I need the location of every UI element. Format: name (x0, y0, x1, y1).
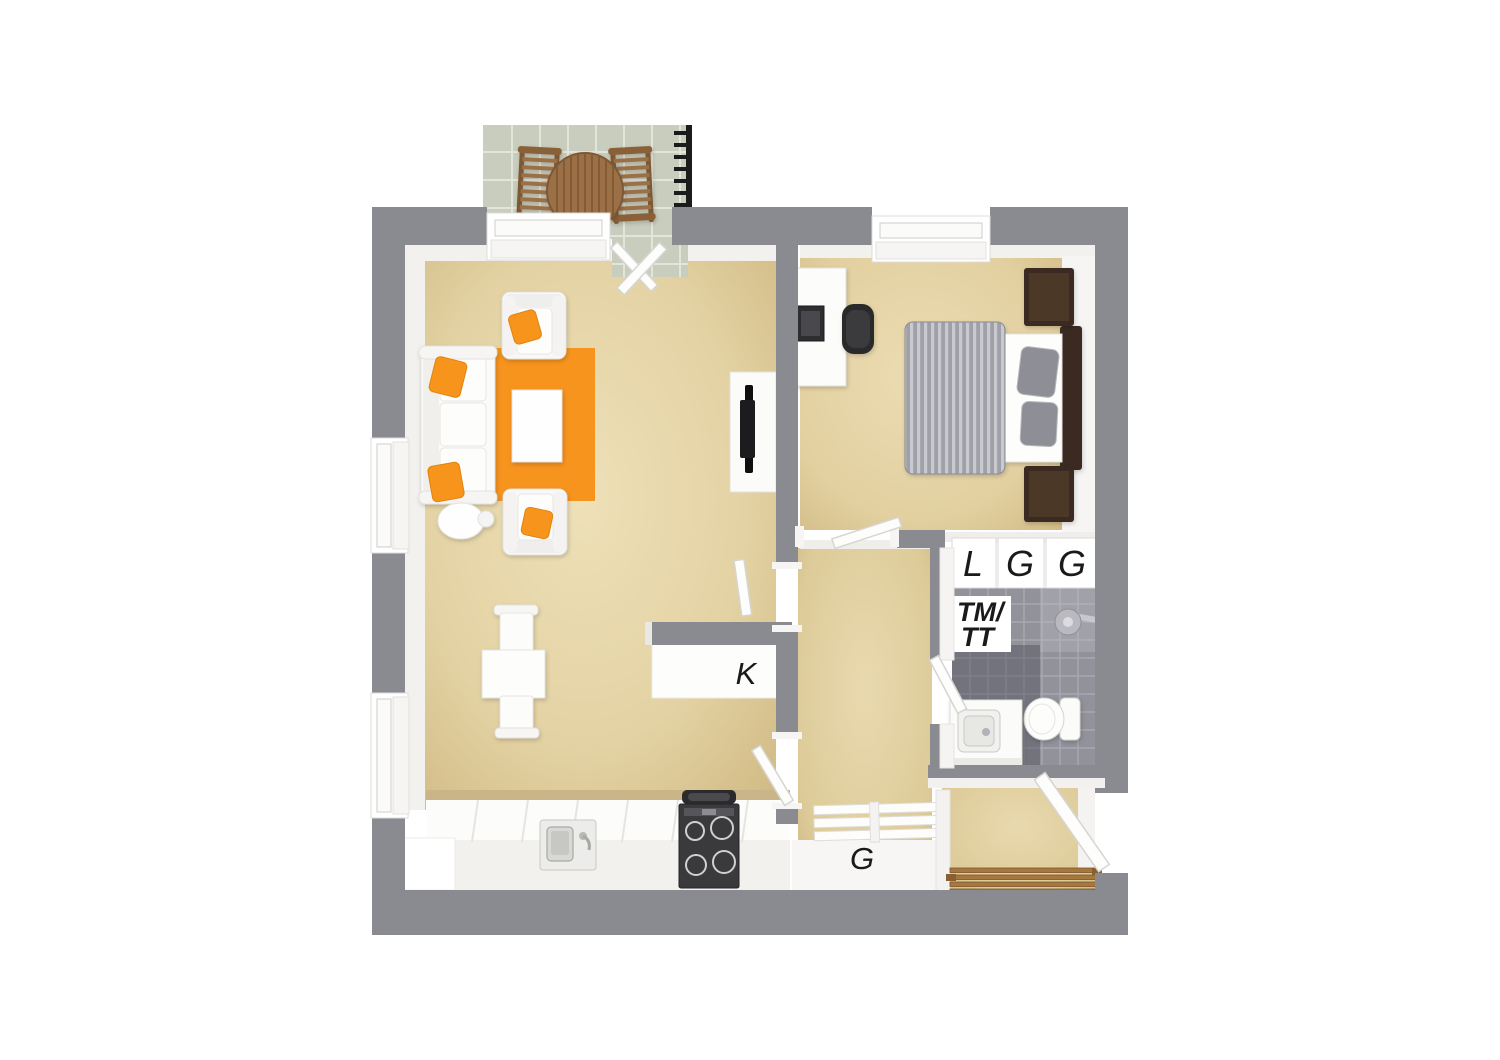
nightstand-bottom (1024, 466, 1074, 522)
bed (905, 322, 1082, 474)
headboard (1060, 326, 1082, 470)
stove (679, 790, 739, 888)
kitchen-sink (540, 820, 596, 870)
wall-right-upper (1095, 207, 1128, 793)
toilet (1024, 698, 1080, 740)
wall-hall-mid (776, 630, 798, 737)
wall-bath-left-upper (930, 548, 940, 660)
bedroom-window (872, 216, 990, 262)
armchair-bottom-pillow (520, 506, 553, 539)
wall-left-mid (372, 553, 405, 693)
duvet (905, 322, 1005, 474)
pillow-1 (1016, 346, 1060, 398)
living-room-window (487, 213, 610, 260)
wall-top-mid (672, 207, 872, 245)
half-wall-face (652, 644, 790, 698)
wall-left-upper (372, 207, 405, 438)
closet-label-L: L (963, 543, 983, 584)
coffee-table (512, 390, 562, 462)
tv-stand (730, 372, 776, 492)
wall-left-lower (372, 818, 405, 893)
wall-bedroom-bottom (897, 530, 945, 548)
kitchen-half-wall (645, 622, 792, 698)
left-window-2 (371, 693, 409, 818)
closet-rails (814, 800, 947, 843)
floor-plan-svg: K G L G G TM/ TT (0, 0, 1500, 1060)
kitchen-counter (397, 790, 790, 890)
kitchen-label: K (736, 656, 758, 691)
wall-lr-bedroom (776, 245, 798, 567)
nightstand-top (1024, 268, 1074, 326)
armchair-bottom (503, 489, 567, 555)
armchair-top (502, 292, 566, 359)
closet-label-G2: G (1058, 543, 1086, 584)
pillow-2 (1020, 401, 1058, 447)
sofa (419, 346, 497, 504)
wall-hall-low (776, 807, 798, 824)
bathroom-label-line2: TT (961, 622, 996, 652)
half-wall-cap (645, 622, 792, 645)
left-window-1 (371, 438, 409, 553)
sofa-pillow-bottom (427, 461, 465, 502)
wall-bath-bottom (928, 765, 1105, 778)
desk-chair (842, 304, 874, 354)
wall-bath-left-lower (930, 724, 940, 770)
floor-plan-canvas: K G L G G TM/ TT (0, 0, 1500, 1060)
entrance-closet-label: G (850, 841, 874, 876)
counter-end-cabinet (397, 838, 455, 890)
wall-bottom (372, 890, 1128, 935)
closet-label-G1: G (1006, 543, 1034, 584)
entrance-closet-wall (936, 790, 950, 902)
